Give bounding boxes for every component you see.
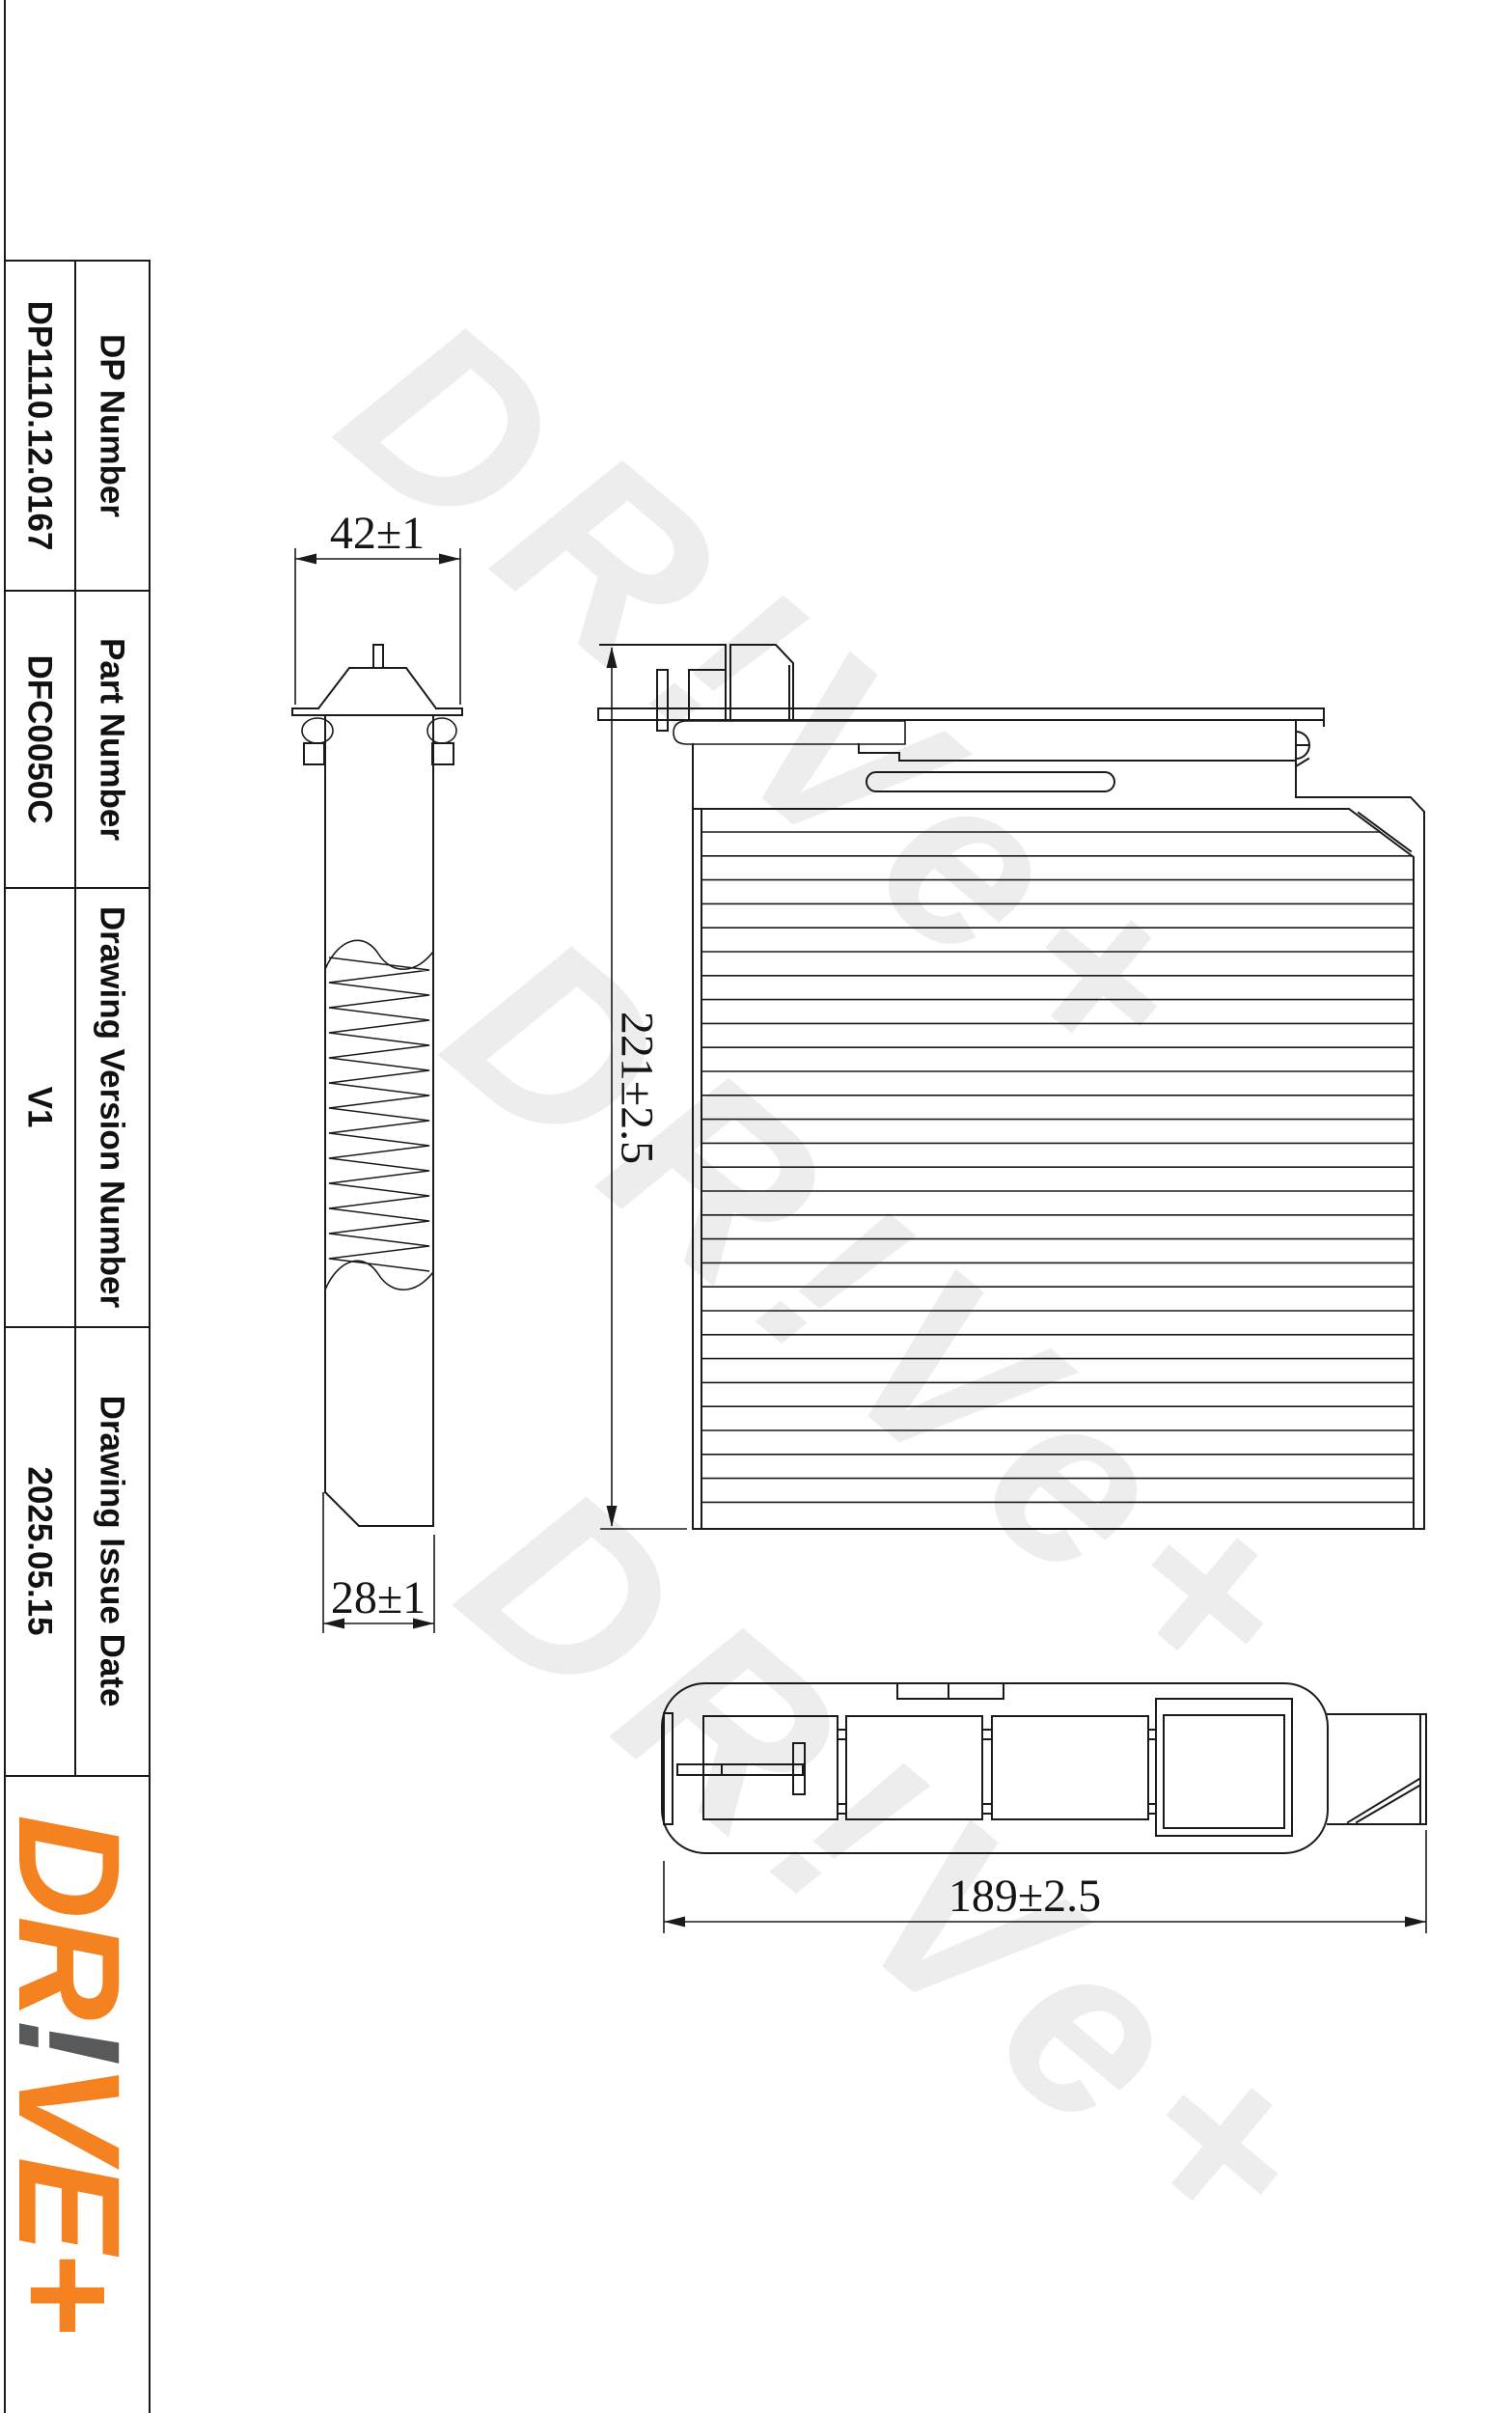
logo-ve-plus: VE+ (0, 2063, 151, 2332)
side-view-right-block (432, 743, 454, 764)
side-view-flange (292, 708, 462, 715)
front-view-right-step (1296, 797, 1424, 1529)
bottom-view-bridge (1148, 1730, 1156, 1739)
bottom-view-bridge (982, 1730, 992, 1739)
logo-dr: DR (0, 1815, 151, 2020)
bottom-view-tab-wedge (1348, 1779, 1419, 1822)
dim-42-text: 42±1 (330, 508, 425, 559)
bottom-view-top-notch (897, 1685, 1003, 1699)
drawing-issue-date-label: Drawing Issue Date (94, 1396, 131, 1707)
dim-42-arrow-left (295, 554, 316, 565)
dim-189-text: 189±2.5 (948, 1871, 1101, 1922)
drawing-sheet: DR!Ve+ DR!Ve+ DR!Ve+ DP1110.12.0167 DP N… (0, 0, 1512, 2413)
dim-221-text: 221±2.5 (612, 1012, 663, 1164)
technical-drawing-canvas: DR!Ve+ DR!Ve+ DR!Ve+ DP1110.12.0167 DP N… (0, 0, 1512, 2413)
side-view-left-seal (302, 718, 333, 743)
side-view-pin (373, 645, 383, 668)
logo-text: DR!VE+ (0, 1815, 151, 2333)
front-view-clip-detail-right (1296, 732, 1309, 766)
drawing-issue-date-value: 2025.05.15 (21, 1466, 59, 1635)
side-view-right-seal (427, 718, 456, 743)
drawing-version-label: Drawing Version Number (94, 906, 131, 1309)
side-view-bottom-chamfer (325, 1492, 433, 1526)
dp-number-value: DP1110.12.0167 (21, 301, 59, 551)
watermark-text-1: DR!Ve+ (294, 264, 1264, 1141)
bottom-view-side-tab (1328, 1714, 1426, 1824)
logo-exclamation: ! (0, 2018, 151, 2065)
brand-logo: DR!VE+ (0, 1815, 151, 2333)
bottom-view-bridge (1148, 1804, 1156, 1814)
side-view-cap (318, 668, 436, 708)
drawing-version-value: V1 (21, 1087, 59, 1128)
dim-189-arrow-left (664, 1917, 685, 1928)
dim-28-text: 28±1 (331, 1572, 426, 1623)
part-number-label: Part Number (94, 638, 131, 841)
dp-number-label: DP Number (94, 334, 131, 517)
side-view-left-block (304, 743, 324, 764)
side-view-break-line-top (325, 940, 433, 969)
part-number-value: DFC0050C (21, 654, 59, 823)
dim-189-arrow-right (1405, 1917, 1426, 1928)
side-view-pleat-zigzag (329, 957, 429, 1271)
